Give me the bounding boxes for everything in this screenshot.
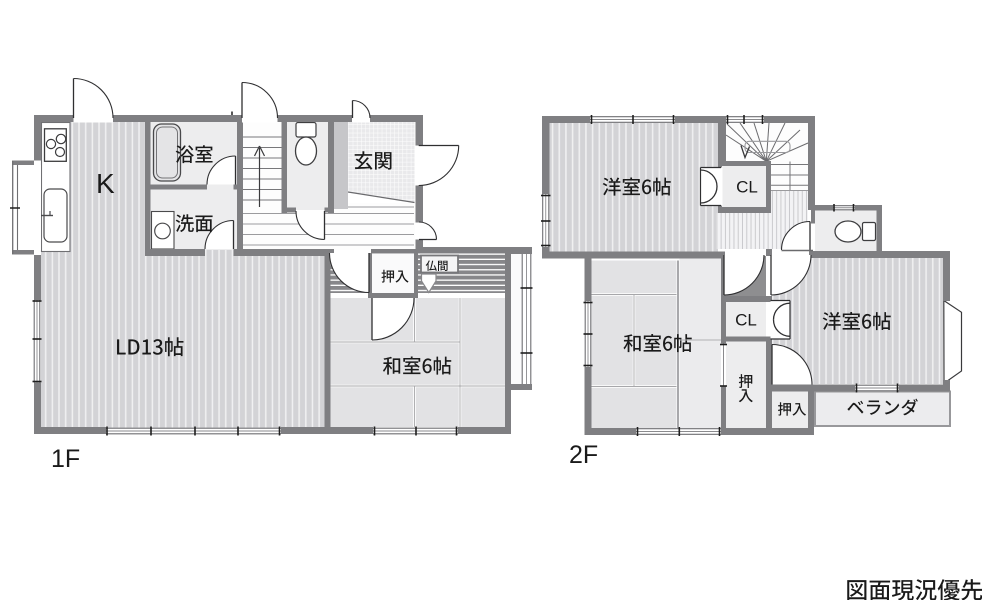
svg-text:1F: 1F [51, 445, 80, 473]
svg-text:K: K [96, 168, 115, 199]
svg-text:CL: CL [736, 178, 758, 197]
svg-text:2F: 2F [569, 441, 598, 469]
svg-text:CL: CL [735, 311, 757, 330]
